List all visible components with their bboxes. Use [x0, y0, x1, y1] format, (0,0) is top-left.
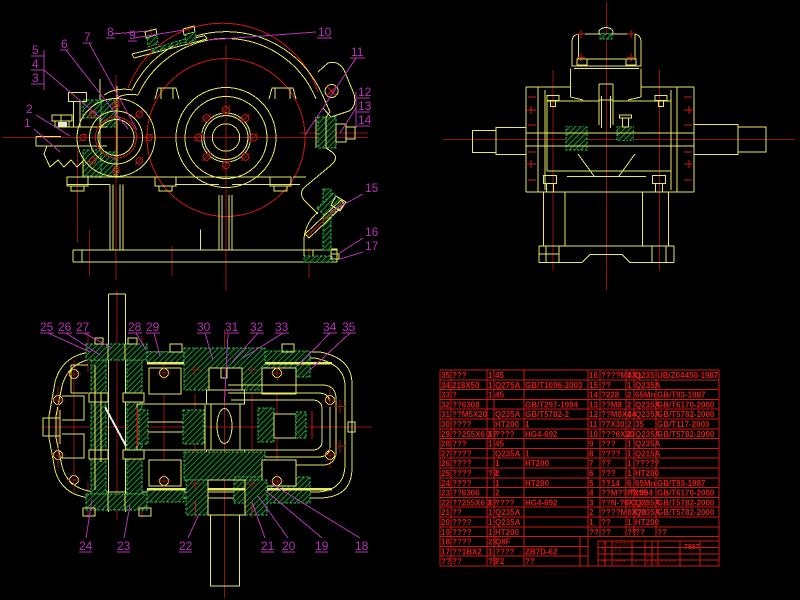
svg-text:13: 13	[589, 400, 598, 409]
svg-text:65Mn: 65Mn	[635, 391, 656, 400]
svg-text:???: ???	[601, 440, 616, 449]
svg-text:Q235A: Q235A	[495, 449, 521, 458]
svg-text:14: 14	[358, 113, 372, 127]
svg-text:19: 19	[315, 539, 329, 553]
svg-text:?2: ?2	[495, 557, 505, 566]
svg-text:10: 10	[589, 430, 598, 439]
svg-text:GB/T117-2000: GB/T117-2000	[657, 420, 710, 429]
svg-text:??: ??	[635, 528, 645, 537]
svg-text:???: ???	[452, 440, 467, 449]
svg-text:????: ????	[452, 469, 472, 478]
svg-text:1: 1	[488, 391, 493, 400]
svg-text:23: 23	[117, 539, 131, 553]
svg-text:13: 13	[358, 99, 372, 113]
svg-text:1: 1	[525, 449, 530, 458]
svg-text:Q235A: Q235A	[635, 381, 661, 390]
svg-text:?228: ?228	[601, 391, 620, 400]
svg-text:??: ??	[452, 557, 462, 566]
svg-text:32: 32	[441, 400, 450, 409]
svg-text:????: ????	[452, 528, 472, 537]
svg-text:GB/T5782-2000: GB/T5782-2000	[657, 508, 715, 517]
svg-text:??: ??	[601, 560, 607, 566]
svg-text:Q8F: Q8F	[495, 538, 511, 547]
svg-text:26: 26	[58, 320, 72, 334]
svg-text:35: 35	[441, 371, 450, 380]
svg-text:1: 1	[488, 381, 493, 390]
svg-text:HT200: HT200	[635, 469, 660, 478]
svg-text:17: 17	[365, 239, 379, 253]
svg-text:??: ??	[601, 381, 611, 390]
svg-text:5: 5	[32, 43, 39, 57]
svg-text:16: 16	[589, 371, 598, 380]
svg-text:1: 1	[495, 479, 500, 488]
svg-text:????: ????	[452, 518, 472, 527]
svg-text:16: 16	[365, 225, 379, 239]
svg-text:31: 31	[225, 320, 239, 334]
svg-text:20: 20	[441, 518, 450, 527]
svg-text:8: 8	[589, 449, 594, 458]
svg-text:65Mn: 65Mn	[635, 479, 656, 488]
svg-text:2: 2	[26, 102, 33, 116]
svg-text:25: 25	[40, 320, 54, 334]
svg-text:27: 27	[441, 449, 450, 458]
svg-text:11: 11	[351, 45, 364, 59]
svg-text:1: 1	[627, 381, 632, 390]
svg-text:22: 22	[179, 539, 193, 553]
svg-text:15: 15	[365, 181, 379, 195]
svg-text:8: 8	[107, 25, 114, 39]
svg-text:22: 22	[441, 498, 450, 507]
svg-text:34: 34	[441, 381, 450, 390]
svg-text:2: 2	[627, 400, 632, 409]
svg-text:GB/T93-1987: GB/T93-1987	[657, 479, 706, 488]
svg-text:24: 24	[441, 479, 450, 488]
svg-text:28: 28	[441, 440, 450, 449]
svg-text:1: 1	[488, 371, 493, 380]
svg-text:4: 4	[627, 371, 632, 380]
svg-text:29: 29	[441, 430, 450, 439]
svg-text:20: 20	[282, 539, 296, 553]
svg-text:28: 28	[128, 320, 142, 334]
svg-text:14: 14	[589, 391, 598, 400]
svg-text:1: 1	[525, 420, 530, 429]
svg-text:Q215A: Q215A	[635, 449, 661, 458]
svg-text:6: 6	[589, 469, 594, 478]
svg-text:HT200: HT200	[495, 420, 520, 429]
svg-text:15: 15	[589, 381, 598, 390]
svg-text:??: ??	[452, 508, 462, 517]
svg-text:????: ????	[495, 547, 515, 556]
svg-text:2: 2	[627, 391, 632, 400]
svg-text:????: ????	[452, 538, 472, 547]
svg-text:??: ??	[601, 518, 611, 527]
svg-text:6: 6	[627, 479, 632, 488]
svg-text:Q235A: Q235A	[495, 508, 521, 517]
svg-text:??1BX2: ??1BX2	[452, 547, 482, 556]
svg-text:7: 7	[589, 459, 594, 468]
svg-text:HT200: HT200	[495, 528, 520, 537]
svg-text:12: 12	[358, 85, 372, 99]
svg-text:????: ????	[452, 449, 472, 458]
svg-text:1: 1	[495, 459, 500, 468]
svg-text:32: 32	[250, 320, 264, 334]
svg-text:HT200: HT200	[525, 479, 550, 488]
svg-text:11: 11	[589, 420, 598, 429]
svg-text:45: 45	[495, 371, 504, 380]
svg-text:30: 30	[197, 320, 211, 334]
svg-text:??: ??	[589, 528, 599, 537]
svg-text:1: 1	[627, 449, 632, 458]
svg-text:GB/T5782-2: GB/T5782-2	[525, 410, 570, 419]
svg-text:GB/T297-1994: GB/T297-1994	[525, 400, 578, 409]
svg-text:??M8: ??M8	[601, 400, 622, 409]
svg-text:17: 17	[441, 547, 450, 556]
svg-text:1: 1	[488, 518, 493, 527]
svg-text:???: ???	[601, 469, 616, 478]
svg-text:GB/T5782-2000: GB/T5782-2000	[657, 498, 715, 507]
svg-text:9: 9	[129, 28, 136, 42]
svg-text:31: 31	[441, 410, 450, 419]
svg-text:1: 1	[488, 547, 493, 556]
svg-text:1: 1	[488, 430, 493, 439]
svg-text:????: ????	[452, 479, 472, 488]
svg-text:1: 1	[488, 440, 493, 449]
svg-text:4: 4	[627, 430, 632, 439]
svg-text:1: 1	[488, 508, 493, 517]
svg-text:HT200: HT200	[635, 518, 660, 527]
svg-text:218X50: 218X50	[452, 381, 480, 390]
svg-text:??: ??	[601, 528, 611, 537]
svg-text:HG4-692: HG4-692	[525, 430, 558, 439]
svg-text:UB/Z04450-1987: UB/Z04450-1987	[657, 371, 719, 380]
svg-text:GB/T1096-2003: GB/T1096-2003	[525, 381, 583, 390]
svg-text:????: ????	[452, 459, 472, 468]
svg-text:?7X30: ?7X30	[601, 420, 625, 429]
svg-text:Q275A: Q275A	[495, 381, 521, 390]
svg-text:??14: ??14	[601, 479, 620, 488]
svg-text:3: 3	[589, 498, 594, 507]
svg-text:2: 2	[627, 420, 632, 429]
svg-text:??: ??	[601, 459, 611, 468]
svg-text:HG4-692: HG4-692	[525, 498, 558, 507]
svg-text:?: ?	[627, 498, 632, 507]
svg-text:??: ??	[441, 557, 451, 566]
svg-text:????: ????	[614, 560, 625, 566]
svg-text:1: 1	[627, 440, 632, 449]
svg-text:Q235A: Q235A	[495, 518, 521, 527]
svg-text:9: 9	[589, 440, 594, 449]
svg-text:35: 35	[635, 420, 644, 429]
svg-text:7: 7	[84, 30, 91, 44]
svg-text:10: 10	[318, 25, 332, 39]
svg-text:??????: ??????	[614, 542, 631, 548]
svg-text:??: ??	[601, 549, 607, 555]
svg-text:35: 35	[342, 320, 356, 334]
svg-text:GB/T6170-2000: GB/T6170-2000	[657, 400, 715, 409]
svg-text:1994: 1994	[635, 489, 653, 498]
svg-text:19: 19	[441, 528, 450, 537]
svg-text:4: 4	[32, 57, 39, 71]
svg-text:3: 3	[32, 71, 39, 85]
svg-text:1: 1	[589, 518, 594, 527]
svg-text:2: 2	[495, 469, 500, 478]
svg-text:??: ??	[657, 528, 667, 537]
svg-text:Q235A: Q235A	[635, 440, 661, 449]
svg-text:1: 1	[627, 469, 632, 478]
svg-text:33: 33	[441, 391, 450, 400]
svg-text:29: 29	[146, 320, 160, 334]
svg-text:5: 5	[589, 479, 594, 488]
svg-text:????: ????	[495, 498, 515, 507]
svg-text:12: 12	[589, 410, 598, 419]
svg-text:ZB7D-62: ZB7D-62	[525, 547, 558, 556]
svg-text:HT200: HT200	[525, 459, 550, 468]
svg-text:??: ??	[601, 542, 607, 548]
svg-text:30: 30	[441, 420, 450, 429]
svg-text:1: 1	[627, 459, 632, 468]
svg-text:25: 25	[441, 469, 450, 478]
svg-text:27: 27	[76, 320, 90, 334]
svg-text:?: ?	[452, 391, 457, 400]
svg-text:18: 18	[441, 538, 450, 547]
svg-text:1: 1	[488, 528, 493, 537]
svg-text:??6306: ??6306	[452, 489, 480, 498]
svg-text:GB/T6170-2000: GB/T6170-2000	[657, 489, 715, 498]
svg-text:6: 6	[61, 37, 68, 51]
svg-text:1:1.5: 1:1.5	[646, 560, 657, 566]
svg-text:7987: 7987	[684, 544, 700, 551]
svg-text:26: 26	[441, 459, 450, 468]
svg-text:????: ????	[601, 449, 621, 458]
svg-text:?: ?	[634, 560, 637, 566]
svg-text:? ? ? ?: ? ? ? ?	[660, 560, 676, 566]
svg-text:34: 34	[323, 320, 337, 334]
svg-text:33: 33	[275, 320, 289, 334]
svg-text:4: 4	[627, 410, 632, 419]
svg-text:45: 45	[495, 391, 504, 400]
svg-text:2: 2	[495, 489, 500, 498]
svg-text:21: 21	[261, 539, 275, 553]
svg-text:????: ????	[452, 420, 472, 429]
svg-text:18: 18	[355, 539, 369, 553]
svg-text:GB/T5782-2000: GB/T5782-2000	[657, 410, 715, 419]
svg-text:GB/T93-1987: GB/T93-1987	[657, 391, 706, 400]
svg-text:????: ????	[495, 430, 515, 439]
svg-text:1: 1	[24, 116, 31, 130]
svg-text:2: 2	[589, 508, 594, 517]
svg-text:??M5X20: ??M5X20	[452, 410, 488, 419]
svg-text:Q235: Q235	[635, 371, 655, 380]
svg-text:23: 23	[441, 489, 450, 498]
svg-text:Q235A: Q235A	[495, 410, 521, 419]
svg-text:GB/T5782-2000: GB/T5782-2000	[657, 430, 715, 439]
svg-text:24: 24	[79, 539, 93, 553]
svg-text:? ?: ? ?	[614, 549, 621, 555]
svg-text:21: 21	[441, 508, 450, 517]
svg-text:1: 1	[627, 518, 632, 527]
svg-text:??6308: ??6308	[452, 400, 480, 409]
svg-text:?????: ?????	[635, 459, 660, 468]
svg-text:1: 1	[488, 498, 493, 507]
svg-text:??: ??	[525, 557, 535, 566]
svg-text:4: 4	[589, 489, 594, 498]
svg-text:45: 45	[495, 440, 504, 449]
svg-text:???: ???	[452, 371, 467, 380]
